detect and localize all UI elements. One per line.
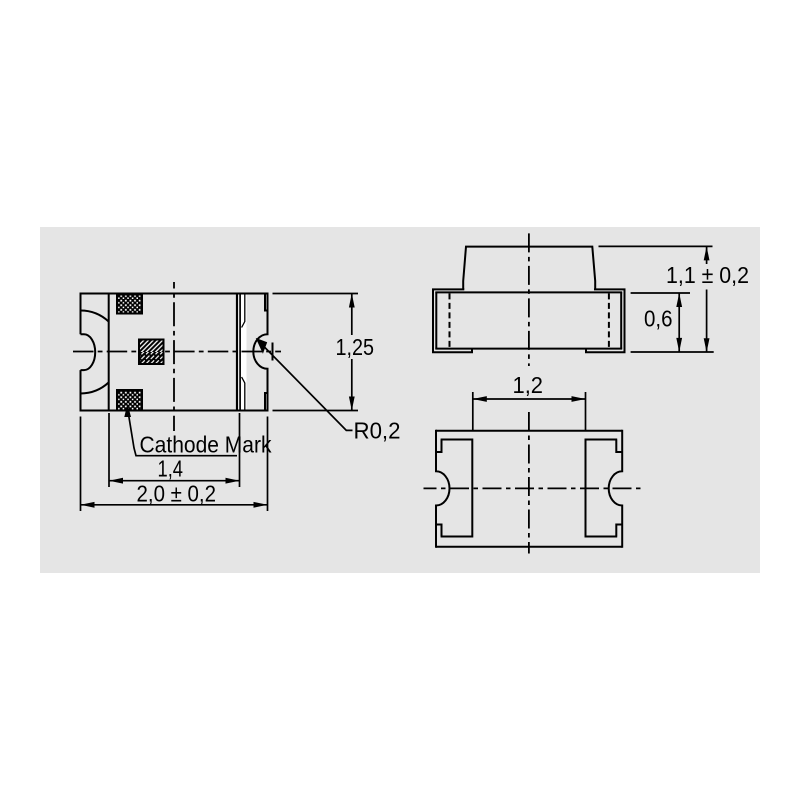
svg-text:0,6: 0,6 — [644, 306, 673, 332]
svg-text:1,1 ± 0,2: 1,1 ± 0,2 — [666, 262, 749, 288]
svg-text:1,25: 1,25 — [336, 334, 375, 360]
svg-text:2,0 ± 0,2: 2,0 ± 0,2 — [137, 481, 217, 507]
svg-text:1,2: 1,2 — [513, 372, 544, 398]
svg-text:Cathode Mark: Cathode Mark — [140, 432, 272, 458]
svg-text:R0,2: R0,2 — [354, 418, 401, 444]
svg-text:1,4: 1,4 — [158, 456, 184, 482]
